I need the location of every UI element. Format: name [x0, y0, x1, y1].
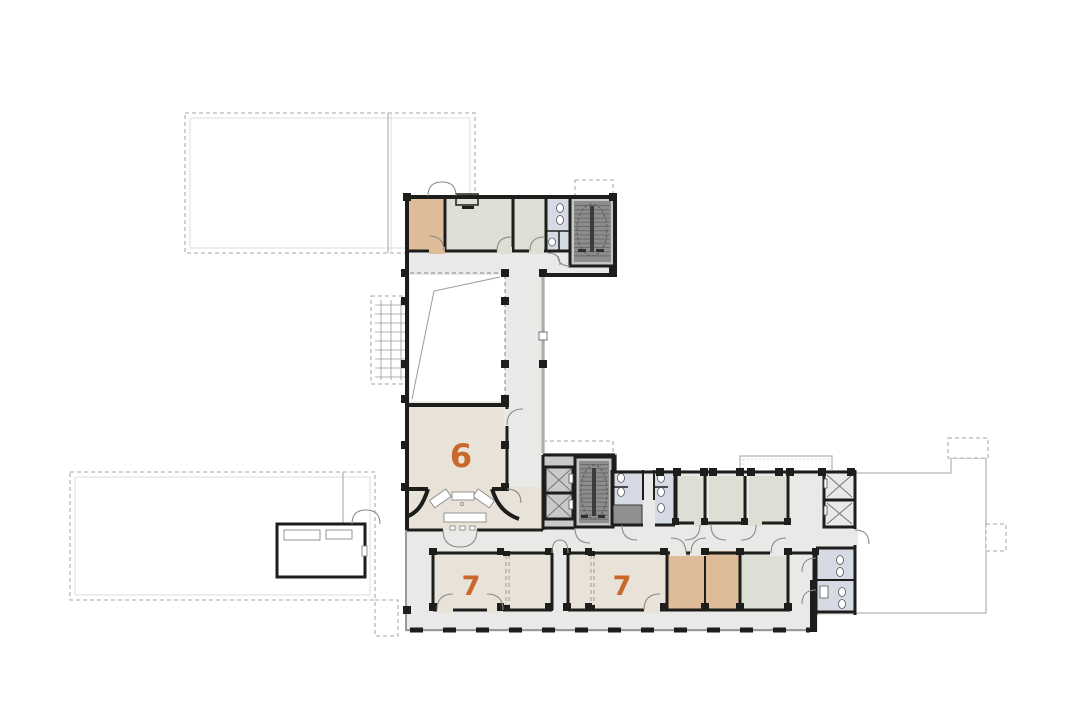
room-south-tan-1: [667, 551, 705, 610]
window: [539, 332, 547, 340]
room-north-tan: [409, 199, 445, 251]
reception-desk: [444, 513, 486, 522]
stair-north: [570, 197, 615, 266]
room-east-green-2: [709, 476, 743, 525]
balcony-outline: [948, 438, 988, 458]
desk: [326, 530, 352, 539]
floor-plan-canvas: 6 7 7: [0, 0, 1080, 716]
room-7-west-floor: [433, 551, 552, 610]
adjacent-building-outline-right: [855, 438, 1006, 613]
balcony-outline-north-stair: [575, 180, 613, 196]
room-east-green-3: [749, 476, 786, 525]
room-6-label: 6: [450, 437, 472, 475]
elevator-door: [569, 474, 573, 483]
room-east-green-1: [676, 476, 703, 525]
room-south-green: [740, 551, 788, 610]
room-south-tan-2: [705, 551, 740, 610]
table: [452, 492, 474, 500]
service-counter: [612, 505, 642, 525]
room-north-green-2: [514, 199, 545, 251]
stair-core: [575, 457, 613, 527]
elevator-door: [824, 479, 827, 488]
room-7-east-label: 7: [613, 571, 632, 602]
elevator-door: [569, 500, 573, 509]
atrium-void: [410, 273, 505, 401]
desk: [284, 530, 320, 540]
balcony-outline: [986, 524, 1006, 551]
elevator-door: [824, 506, 827, 515]
room-north-green-1: [447, 199, 512, 251]
context-outline-lower-left: [70, 472, 398, 636]
room-7-west-label: 7: [462, 571, 481, 602]
floor-plan-drawing: 6 7 7: [0, 0, 1080, 716]
balcony-outline-core: [543, 441, 613, 454]
